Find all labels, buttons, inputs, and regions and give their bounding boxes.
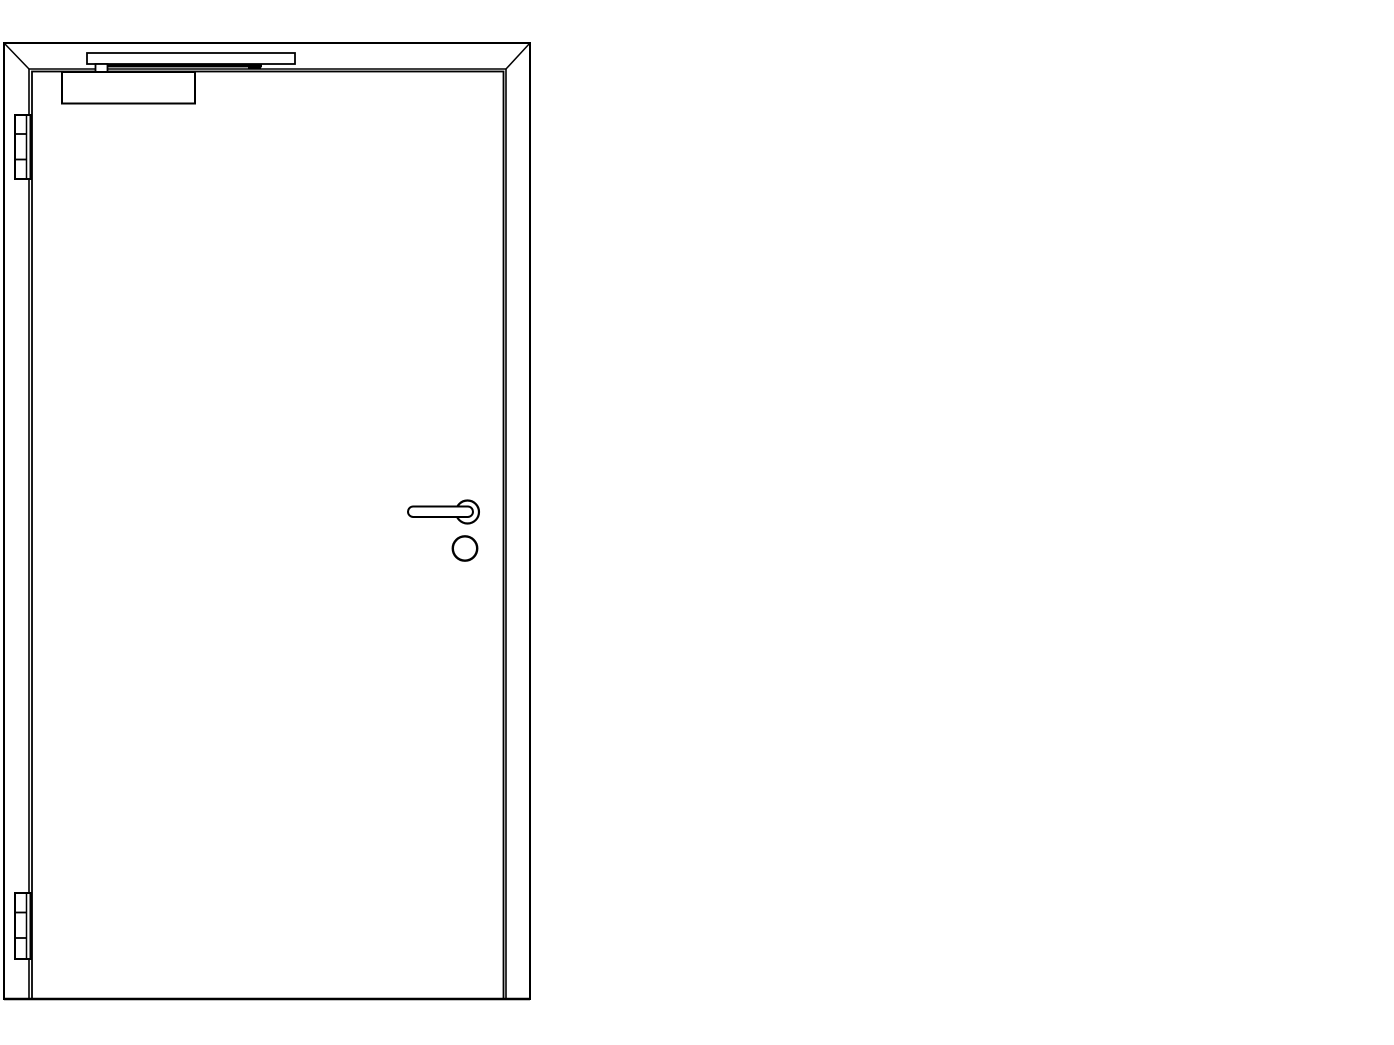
closer-rail-channel: [98, 64, 262, 67]
door-frame-outer: [4, 43, 530, 999]
hinge-top: [15, 115, 31, 179]
door-frame-rebate: [29, 69, 506, 999]
door-elevation-svg: [0, 0, 1394, 1045]
frame-miter-line-left: [4, 43, 29, 69]
closer-rail-slider-block: [248, 64, 261, 70]
hinge-bottom: [15, 893, 31, 959]
door-technical-drawing: [0, 0, 1394, 1045]
door-closer-body: [62, 72, 195, 104]
lever-handle: [408, 507, 473, 518]
closer-slide-rail: [87, 53, 295, 64]
lock-cylinder: [453, 536, 477, 560]
door-leaf: [32, 72, 504, 1000]
frame-miter-line-right: [506, 43, 530, 69]
